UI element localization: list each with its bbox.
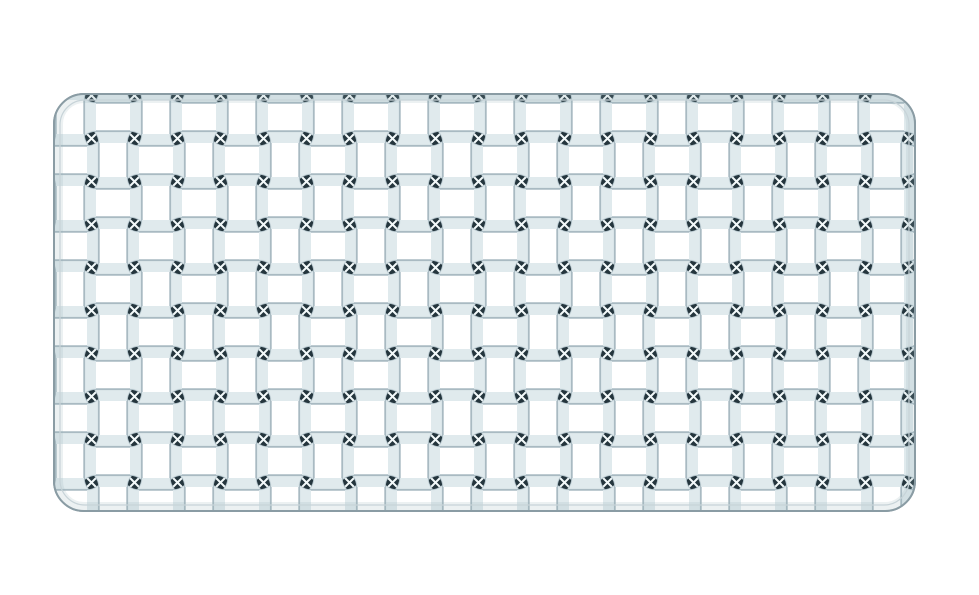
tray-pattern-fill xyxy=(54,94,915,511)
product-photo-canvas xyxy=(0,0,979,595)
product-photo xyxy=(0,0,979,595)
tray-pattern-layer xyxy=(54,94,915,511)
